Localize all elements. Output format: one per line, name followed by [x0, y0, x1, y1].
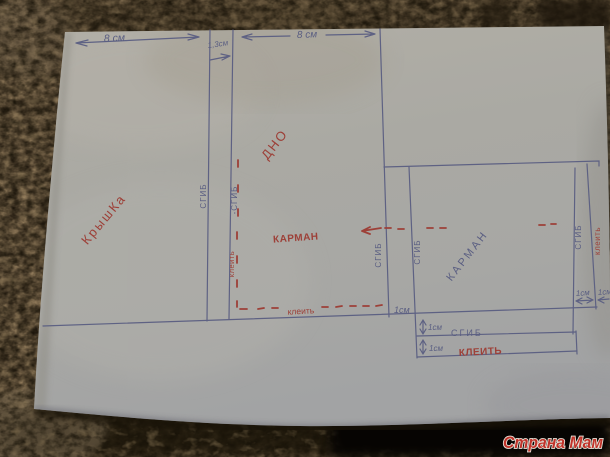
svg-text:1см: 1см: [428, 323, 442, 332]
svg-text:СГИБ: СГИБ: [413, 239, 422, 264]
svg-text:1см: 1см: [598, 287, 610, 297]
svg-text:1см: 1см: [429, 344, 443, 353]
svg-text:клеить: клеить: [227, 251, 236, 277]
svg-text:1см: 1см: [576, 288, 591, 298]
svg-text:1см: 1см: [394, 305, 410, 315]
svg-text:СГИБ: СГИБ: [199, 183, 208, 208]
svg-text:Страна Мам: Страна Мам: [503, 434, 603, 452]
svg-text:8 см: 8 см: [104, 32, 126, 45]
svg-text:клеить: клеить: [287, 305, 315, 316]
svg-text:КЛЕИТЬ: КЛЕИТЬ: [459, 346, 503, 359]
svg-text:СГИБ: СГИБ: [451, 328, 483, 338]
svg-text:клеить: клеить: [593, 227, 602, 255]
svg-text:8 см: 8 см: [297, 29, 318, 41]
svg-text:СГИБ: СГИБ: [574, 224, 583, 249]
svg-text:СГИБ: СГИБ: [374, 242, 383, 267]
